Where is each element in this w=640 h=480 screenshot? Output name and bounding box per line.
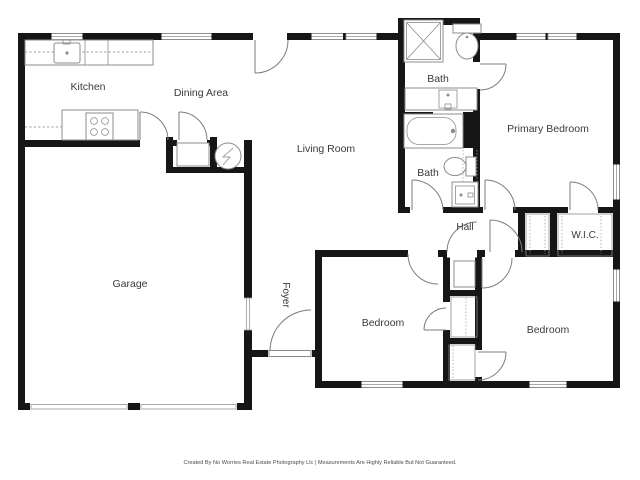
window [359,381,405,388]
window [613,267,620,304]
footer-credit-text: Created By No Worries Real Estate Photog… [183,460,457,466]
bathtub-icon [404,114,463,148]
floor-plan-drawing: Kitchen Dining Area Living Room Bath Pri… [0,0,640,480]
window [613,162,620,202]
floor-plan-page: Kitchen Dining Area Living Room Bath Pri… [0,0,640,480]
vanity-sink-icon [452,182,478,207]
water-heater-icon [215,143,241,169]
room-label-wic: W.I.C. [571,230,598,241]
window [548,33,579,40]
room-label-bedroom-right: Bedroom [527,324,570,336]
closet-platform-icon [454,261,475,287]
window [346,33,379,40]
room-label-primary-bedroom: Primary Bedroom [507,123,589,135]
room-label-bath-top: Bath [427,73,449,85]
room-label-kitchen: Kitchen [70,81,105,93]
room-label-foyer: Foyer [280,282,291,308]
window [309,33,346,40]
kitchen-counter-icon [25,40,153,65]
furnace-platform-icon [177,143,209,166]
window [49,33,85,40]
room-label-bath-lower: Bath [417,167,439,179]
room-label-dining-area: Dining Area [174,87,228,99]
window [514,33,548,40]
window [527,381,569,388]
room-label-bedroom-left: Bedroom [362,317,405,329]
kitchen-sink-icon [54,40,80,63]
shower-icon [404,20,443,62]
window [159,33,214,40]
vanity-sink-icon [405,88,477,110]
room-label-living-room: Living Room [297,143,356,155]
room-label-hall: Hall [456,222,473,233]
room-label-garage: Garage [112,278,147,290]
garage-door [140,403,237,411]
stove-icon [86,113,113,140]
garage-door [30,403,128,411]
